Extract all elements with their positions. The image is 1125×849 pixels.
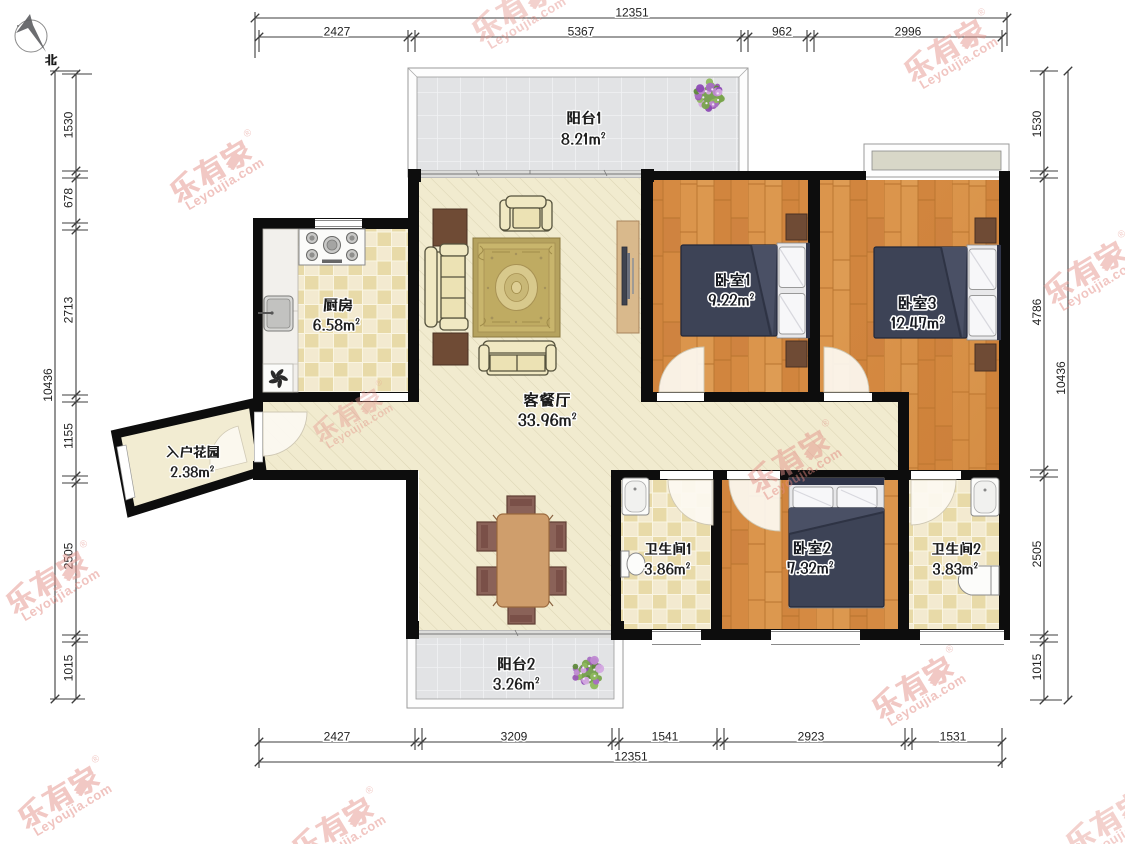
svg-text:2996: 2996 bbox=[895, 25, 922, 39]
svg-text:12351: 12351 bbox=[615, 6, 649, 20]
svg-text:5367: 5367 bbox=[568, 25, 595, 39]
svg-text:10436: 10436 bbox=[1054, 361, 1068, 395]
svg-text:1530: 1530 bbox=[1030, 110, 1044, 137]
svg-text:1541: 1541 bbox=[652, 730, 679, 744]
svg-text:1015: 1015 bbox=[1030, 653, 1044, 680]
svg-text:1530: 1530 bbox=[62, 111, 76, 138]
svg-text:2427: 2427 bbox=[324, 730, 351, 744]
svg-text:2923: 2923 bbox=[798, 730, 825, 744]
svg-text:1531: 1531 bbox=[940, 730, 967, 744]
svg-text:2505: 2505 bbox=[1030, 540, 1044, 567]
svg-text:12351: 12351 bbox=[614, 750, 648, 764]
svg-text:678: 678 bbox=[62, 188, 76, 208]
svg-text:1155: 1155 bbox=[62, 423, 76, 449]
svg-text:1015: 1015 bbox=[62, 654, 76, 681]
svg-text:962: 962 bbox=[772, 25, 792, 39]
svg-text:2427: 2427 bbox=[324, 25, 351, 39]
svg-text:3209: 3209 bbox=[501, 730, 528, 744]
svg-text:4786: 4786 bbox=[1030, 298, 1044, 325]
svg-text:10436: 10436 bbox=[41, 368, 55, 402]
svg-text:2713: 2713 bbox=[62, 296, 76, 323]
